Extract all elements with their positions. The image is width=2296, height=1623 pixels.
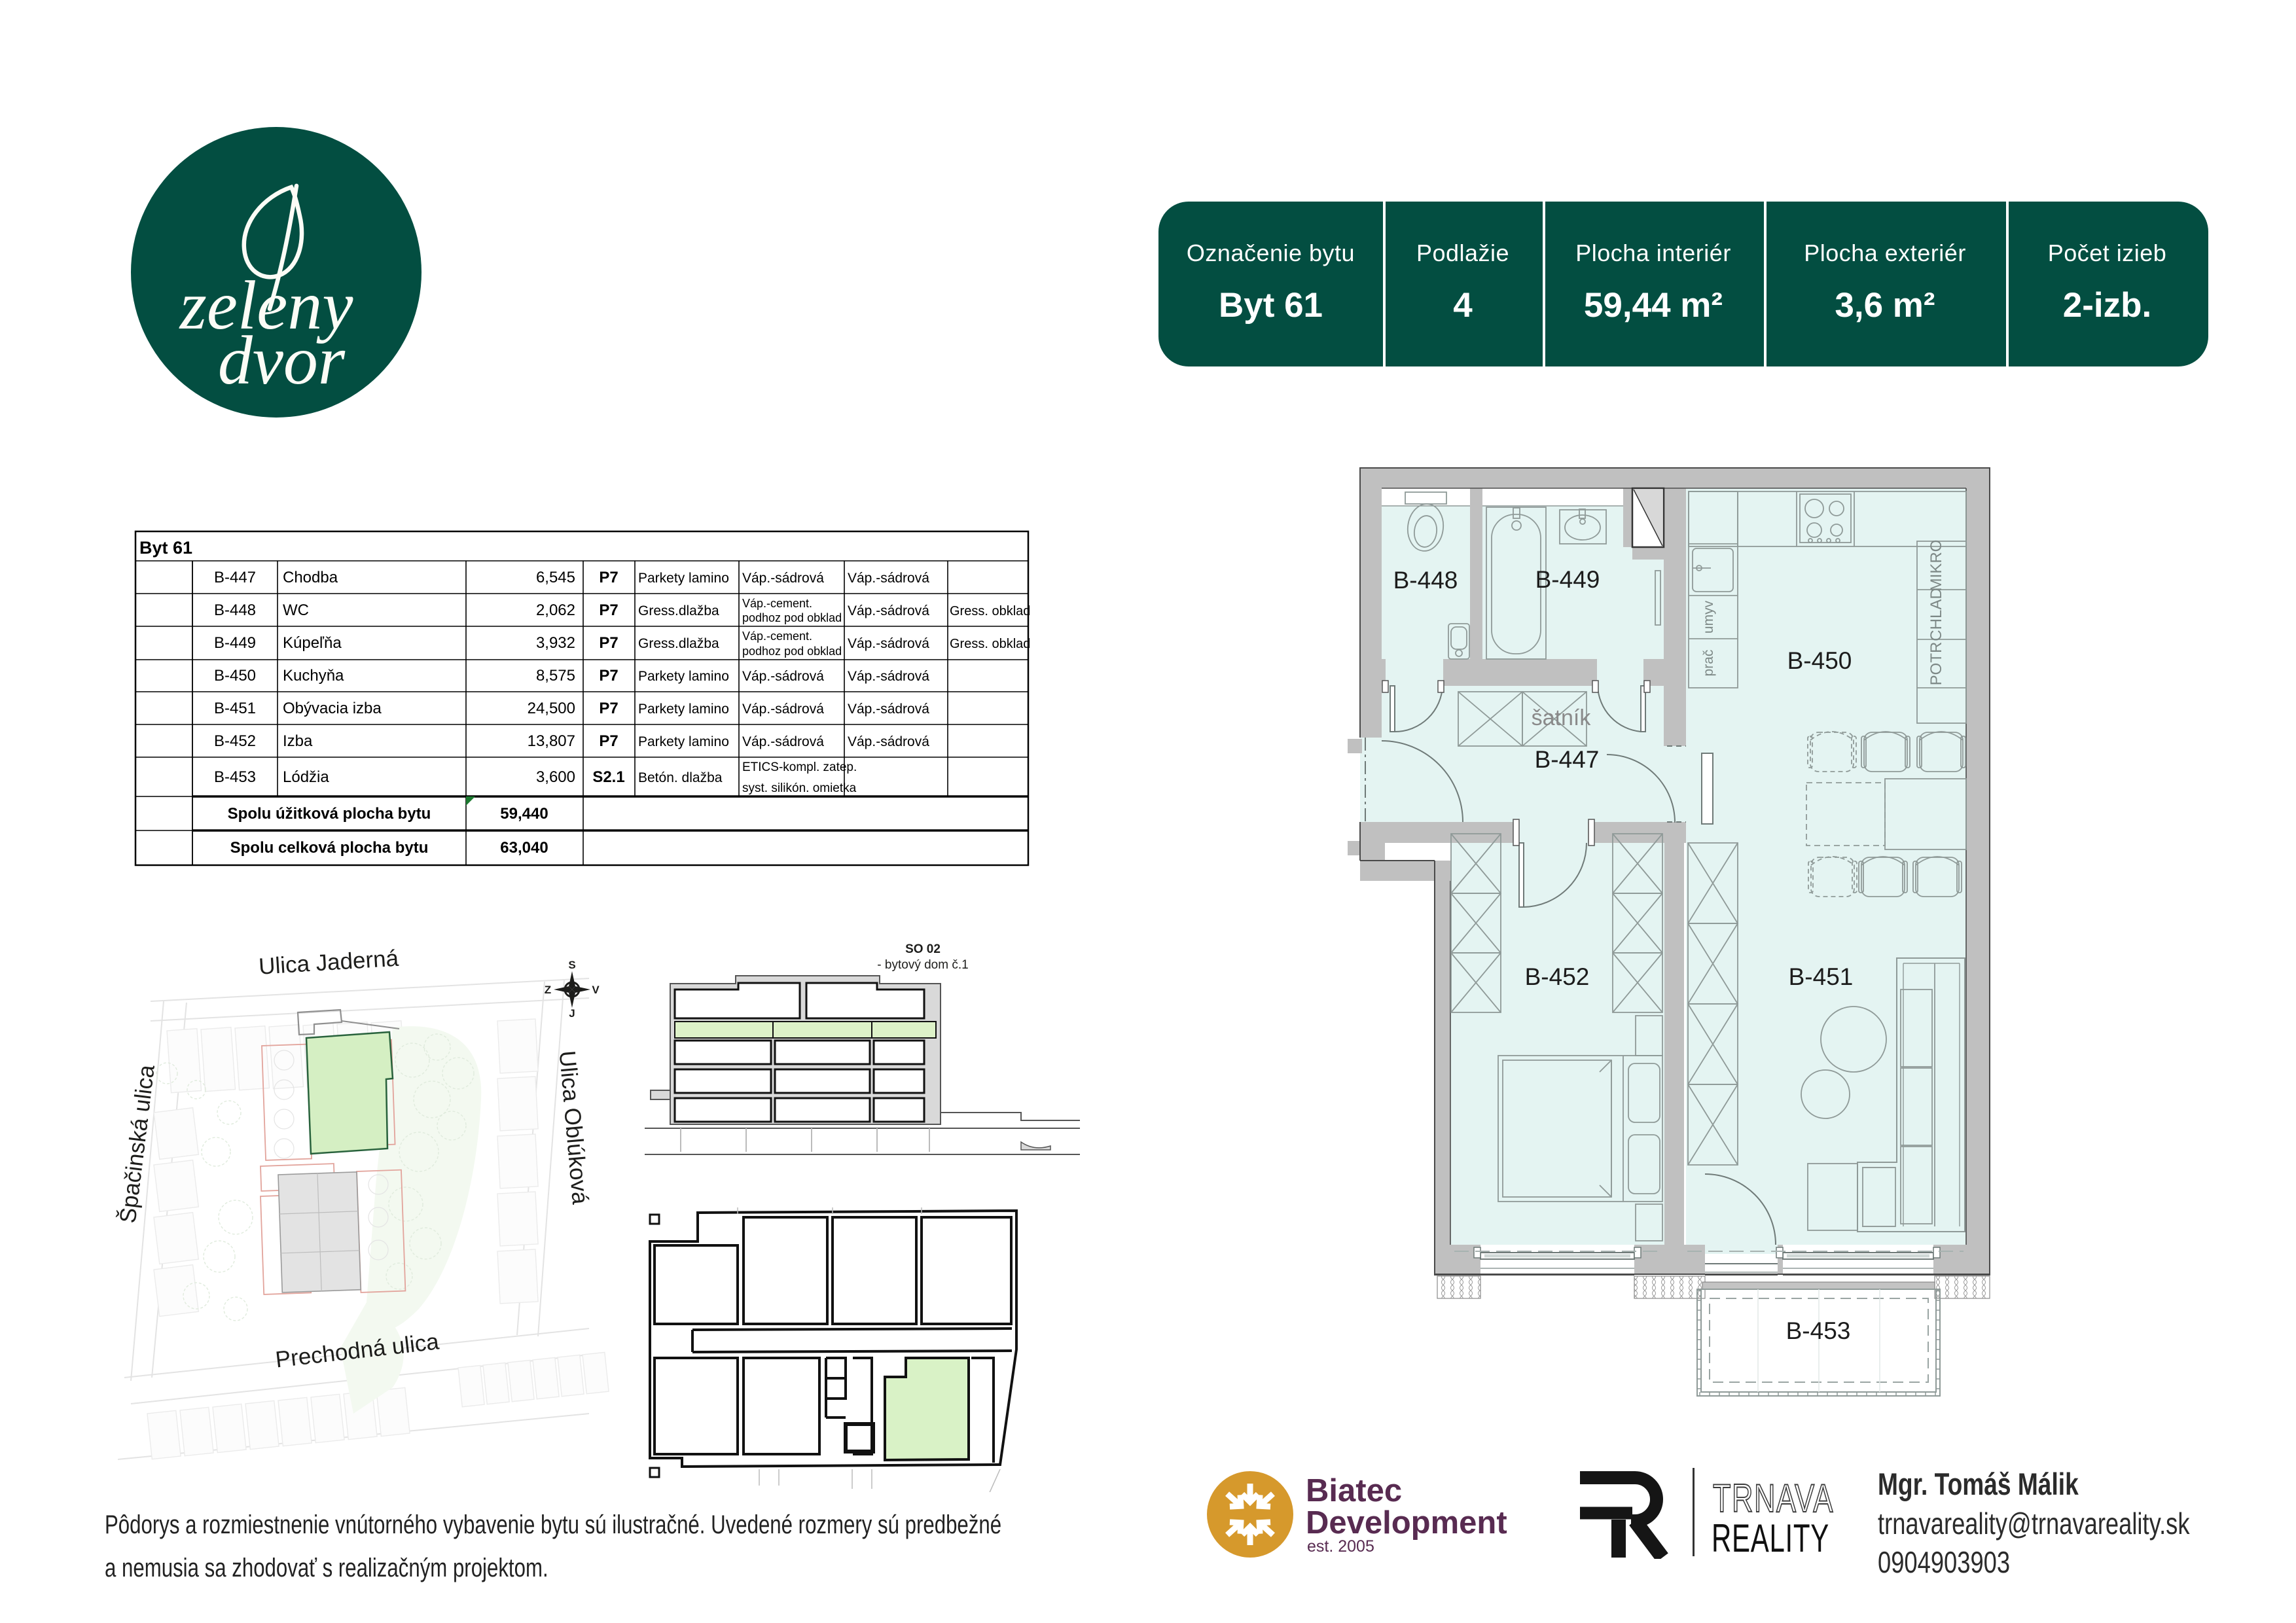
- svg-text:Váp.-sádrová: Váp.-sádrová: [848, 734, 929, 749]
- svg-text:Spolu celková plocha bytu: Spolu celková plocha bytu: [230, 839, 429, 857]
- svg-text:B-447: B-447: [214, 569, 256, 586]
- svg-text:24,500: 24,500: [528, 700, 575, 717]
- svg-text:Váp.-sádrová: Váp.-sádrová: [848, 603, 929, 618]
- svg-text:Parkety lamino: Parkety lamino: [638, 734, 729, 749]
- svg-text:B-451: B-451: [1789, 963, 1854, 990]
- svg-text:Byt 61: Byt 61: [139, 538, 192, 558]
- svg-text:Spolu úžitková plocha bytu: Spolu úžitková plocha bytu: [228, 805, 431, 823]
- svg-text:B-452: B-452: [214, 732, 256, 750]
- svg-text:WC: WC: [283, 601, 309, 619]
- svg-text:Parkety lamino: Parkety lamino: [638, 702, 729, 717]
- svg-text:Gress. obklad: Gress. obklad: [950, 604, 1030, 618]
- svg-text:B-452: B-452: [1525, 963, 1590, 990]
- svg-text:podhoz pod obklad: podhoz pod obklad: [742, 645, 842, 658]
- svg-text:B-449: B-449: [214, 634, 256, 652]
- svg-text:P7: P7: [599, 700, 618, 717]
- svg-text:P7: P7: [599, 569, 618, 586]
- svg-text:B-449: B-449: [1535, 566, 1600, 593]
- svg-text:Váp.-cement.: Váp.-cement.: [742, 630, 812, 643]
- svg-text:Váp.-sádrová: Váp.-sádrová: [742, 734, 824, 749]
- svg-text:B-447: B-447: [1535, 746, 1600, 773]
- svg-text:P7: P7: [599, 732, 618, 750]
- svg-text:MIKRO: MIKRO: [1928, 540, 1945, 592]
- svg-text:Váp.-sádrová: Váp.-sádrová: [848, 636, 929, 651]
- svg-text:syst. silikón. omietka: syst. silikón. omietka: [742, 781, 857, 795]
- svg-text:Váp.-sádrová: Váp.-sádrová: [742, 669, 824, 684]
- svg-text:P7: P7: [599, 634, 618, 652]
- svg-text:Kúpeľňa: Kúpeľňa: [283, 634, 342, 652]
- svg-text:3,932: 3,932: [536, 634, 575, 652]
- svg-text:S: S: [568, 961, 575, 971]
- svg-text:Kuchyňa: Kuchyňa: [283, 667, 344, 685]
- svg-text:Izba: Izba: [283, 732, 313, 750]
- svg-text:B-453: B-453: [214, 768, 256, 786]
- svg-text:ETICS-kompl. zatep.: ETICS-kompl. zatep.: [742, 760, 857, 774]
- svg-text:dvor: dvor: [218, 322, 346, 399]
- svg-text:CHLAD: CHLAD: [1928, 588, 1945, 641]
- svg-text:B-450: B-450: [214, 667, 256, 685]
- svg-text:- bytový dom č.1: - bytový dom č.1: [877, 958, 968, 972]
- svg-text:Gress.dlažba: Gress.dlažba: [638, 603, 719, 618]
- svg-text:B-448: B-448: [214, 601, 256, 619]
- svg-text:V: V: [592, 984, 600, 996]
- svg-text:Váp.-sádrová: Váp.-sádrová: [848, 571, 929, 586]
- svg-text:umyv: umyv: [1701, 600, 1716, 633]
- svg-text:prač: prač: [1701, 650, 1716, 677]
- svg-text:Váp.-sádrová: Váp.-sádrová: [742, 571, 824, 586]
- svg-text:Váp.-sádrová: Váp.-sádrová: [848, 702, 929, 717]
- svg-text:59,440: 59,440: [500, 805, 548, 823]
- svg-text:8,575: 8,575: [536, 667, 575, 685]
- svg-text:Chodba: Chodba: [283, 569, 338, 586]
- svg-text:Gress. obklad: Gress. obklad: [950, 637, 1030, 651]
- svg-text:Betón. dlažba: Betón. dlažba: [638, 770, 723, 785]
- svg-text:B-451: B-451: [214, 700, 256, 717]
- svg-text:J: J: [569, 1007, 575, 1018]
- svg-text:13,807: 13,807: [528, 732, 575, 750]
- svg-text:Gress.dlažba: Gress.dlažba: [638, 636, 719, 651]
- svg-text:63,040: 63,040: [500, 839, 548, 857]
- svg-text:podhoz pod obklad: podhoz pod obklad: [742, 611, 842, 624]
- svg-text:6,545: 6,545: [536, 569, 575, 586]
- svg-text:B-448: B-448: [1393, 567, 1458, 594]
- svg-text:P7: P7: [599, 601, 618, 619]
- svg-text:3,600: 3,600: [536, 768, 575, 786]
- svg-text:B-453: B-453: [1786, 1317, 1851, 1344]
- svg-text:POTR: POTR: [1928, 642, 1945, 686]
- svg-text:Z: Z: [545, 984, 551, 996]
- svg-text:Lódžia: Lódžia: [283, 768, 329, 786]
- svg-text:B-450: B-450: [1787, 647, 1852, 674]
- svg-text:Váp.-sádrová: Váp.-sádrová: [848, 669, 929, 684]
- svg-text:2,062: 2,062: [536, 601, 575, 619]
- svg-text:Obývacia izba: Obývacia izba: [283, 700, 382, 717]
- svg-text:P7: P7: [599, 667, 618, 685]
- svg-text:Váp.-sádrová: Váp.-sádrová: [742, 702, 824, 717]
- svg-text:SO 02: SO 02: [905, 942, 941, 956]
- svg-text:S2.1: S2.1: [592, 768, 624, 786]
- svg-text:Parkety lamino: Parkety lamino: [638, 669, 729, 684]
- svg-text:šatník: šatník: [1532, 705, 1592, 730]
- svg-text:Parkety lamino: Parkety lamino: [638, 571, 729, 586]
- svg-text:Váp.-cement.: Váp.-cement.: [742, 597, 812, 610]
